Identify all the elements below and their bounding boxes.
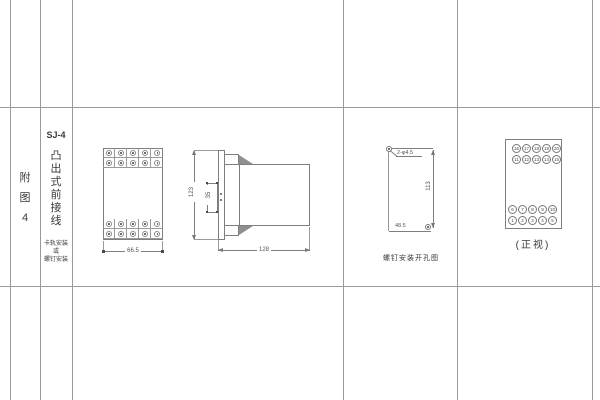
terminal-row: 1617181920	[512, 144, 561, 153]
terminal-cell	[115, 158, 127, 167]
drill-hole-diagram: 2-φ4.5 113 48.5	[383, 143, 439, 239]
terminal-9: 9	[538, 205, 547, 214]
terminal-screw-icon	[142, 150, 148, 156]
side-view-drawing: 123 35 128	[190, 145, 315, 257]
dim-end-marker	[216, 182, 218, 184]
terminal-strip-row	[103, 229, 163, 239]
terminal-strip-top	[103, 148, 163, 168]
terminal-screw-icon	[130, 160, 136, 166]
layout-line	[392, 148, 433, 149]
terminal-20: 20	[552, 144, 561, 153]
terminal-cell	[103, 148, 115, 157]
table-rule-bottom	[0, 286, 600, 287]
vertical-char: 线	[40, 215, 72, 228]
terminal-cell	[127, 158, 139, 167]
terminal-8: 8	[528, 205, 537, 214]
layout-line	[388, 152, 389, 231]
vertical-char: 4	[10, 208, 40, 228]
terminal-cell	[139, 219, 151, 228]
terminal-view-caption: (正视)	[503, 236, 563, 251]
dim-end-marker	[216, 211, 218, 213]
terminal-cell	[151, 219, 163, 228]
leader-underline	[396, 156, 422, 157]
terminal-17: 17	[522, 144, 531, 153]
terminal-cell	[151, 148, 163, 157]
mounting-note-line1: 卡轨安装	[40, 240, 72, 248]
terminal-cell	[139, 158, 151, 167]
terminal-cell	[103, 158, 115, 167]
terminal-screw-icon	[106, 221, 112, 227]
terminal-cell	[151, 229, 163, 238]
mounting-note-line3: 螺钉安装	[40, 256, 72, 264]
terminal-1: 1	[508, 216, 517, 225]
terminal-7: 7	[518, 205, 527, 214]
terminal-row: 678910	[508, 205, 557, 214]
terminal-screw-icon	[130, 221, 136, 227]
terminal-strip-row	[103, 158, 163, 168]
terminal-18: 18	[532, 144, 541, 153]
terminal-19: 19	[542, 144, 551, 153]
vertical-char: 前	[40, 189, 72, 202]
terminal-cell	[139, 148, 151, 157]
vertical-char: 出	[40, 163, 72, 176]
terminal-screw-icon	[130, 150, 136, 156]
terminal-13: 13	[532, 155, 541, 164]
terminal-cell	[115, 219, 127, 228]
terminal-strip-bottom	[103, 219, 163, 239]
terminal-cell	[115, 229, 127, 238]
terminal-screw-icon	[142, 221, 148, 227]
terminal-11: 11	[512, 155, 521, 164]
terminal-14: 14	[542, 155, 551, 164]
terminal-10: 10	[548, 205, 557, 214]
terminal-row: 1112131415	[512, 155, 561, 164]
terminal-15: 15	[552, 155, 561, 164]
terminal-screw-icon	[142, 231, 148, 237]
hole-spec-label: 2-φ4.5	[397, 150, 413, 156]
terminal-cell	[151, 158, 163, 167]
dimension-line	[389, 231, 431, 232]
terminal-screw-icon	[154, 221, 160, 227]
terminal-screw-icon	[142, 160, 148, 166]
dim-arrow	[431, 223, 435, 228]
terminal-cell	[139, 229, 151, 238]
model-label: SJ-4	[40, 130, 72, 140]
terminal-2: 2	[518, 216, 527, 225]
terminal-screw-icon	[106, 160, 112, 166]
terminal-5: 5	[548, 216, 557, 225]
table-rule-v3	[72, 0, 73, 400]
table-rule-v6	[592, 0, 593, 400]
terminal-12: 12	[522, 155, 531, 164]
terminal-cell	[103, 229, 115, 238]
table-rule-top	[0, 107, 600, 108]
terminal-cell	[127, 148, 139, 157]
terminal-screw-icon	[154, 231, 160, 237]
terminal-screw-icon	[118, 160, 124, 166]
terminal-screw-icon	[130, 231, 136, 237]
appendix-label: 附图4	[10, 168, 40, 228]
terminal-cell	[127, 229, 139, 238]
terminal-row: 12345	[508, 216, 557, 225]
terminal-screw-icon	[118, 231, 124, 237]
dim-arrow	[431, 150, 435, 155]
terminal-strip-row	[103, 148, 163, 158]
mounting-note-line2: 或	[40, 248, 72, 256]
drawing-sheet: 附图4 SJ-4 凸出式前接线 卡轨安装 或 螺钉安装 66.5 123	[0, 0, 600, 400]
vertical-char: 附	[10, 168, 40, 188]
terminal-cell	[115, 148, 127, 157]
screw-dot	[220, 199, 222, 201]
terminal-strip-row	[103, 219, 163, 229]
drill-width-dimension: 48.5	[395, 223, 406, 229]
terminal-screw-icon	[106, 150, 112, 156]
terminal-panel: 1617181920 1112131415 678910 12345	[505, 139, 562, 229]
front-view-drawing: 66.5	[103, 145, 165, 257]
terminal-screw-icon	[154, 150, 160, 156]
dim-end-marker	[206, 182, 208, 184]
terminal-screw-icon	[118, 221, 124, 227]
dimension-line	[433, 150, 434, 228]
clip-dimension: 35	[206, 185, 212, 205]
terminal-4: 4	[538, 216, 547, 225]
table-rule-v5	[457, 0, 458, 400]
terminal-6: 6	[508, 205, 517, 214]
mounting-note: 卡轨安装 或 螺钉安装	[40, 240, 72, 264]
vertical-char: 式	[40, 176, 72, 189]
terminal-screw-icon	[106, 231, 112, 237]
vertical-char: 凸	[40, 150, 72, 163]
screw-dot	[220, 193, 222, 195]
vertical-char: 接	[40, 202, 72, 215]
vertical-char: 图	[10, 188, 40, 208]
table-rule-v4	[343, 0, 344, 400]
terminal-cell	[127, 219, 139, 228]
terminal-16: 16	[512, 144, 521, 153]
front-width-dimension: 66.5	[103, 248, 163, 254]
terminal-3: 3	[528, 216, 537, 225]
wiring-type-label: 凸出式前接线	[40, 150, 72, 228]
terminal-screw-icon	[118, 150, 124, 156]
depth-dimension: 128	[218, 247, 310, 253]
terminal-cell	[103, 219, 115, 228]
dim-end-marker	[206, 211, 208, 213]
drill-diagram-caption: 螺钉安装开孔图	[371, 253, 451, 263]
terminal-screw-icon	[154, 160, 160, 166]
drill-height-dimension: 113	[426, 176, 432, 196]
